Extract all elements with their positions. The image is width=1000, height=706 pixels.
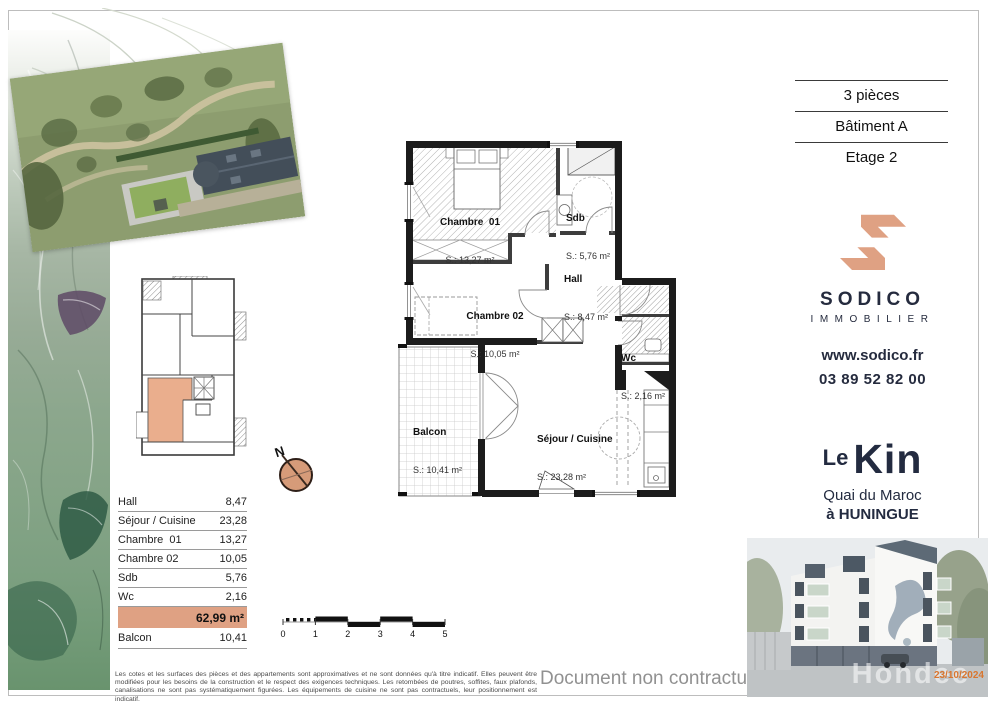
- compass-north-icon: N: [272, 442, 320, 496]
- room-label-wc: Wc S.: 2,16 m²: [621, 329, 665, 414]
- aerial-photo-art: [10, 43, 305, 252]
- scale-tick: 0: [280, 629, 285, 639]
- residence-address1: Quai du Maroc: [790, 487, 955, 504]
- table-row: Chambre 0210,05: [118, 550, 247, 569]
- room-label-sejour: Séjour / Cuisine S.: 23,28 m²: [537, 410, 613, 495]
- scale-tick: 2: [345, 629, 350, 639]
- building-render-photo: Hondee 23/10/2024: [747, 538, 988, 697]
- sodico-logo-icon: [835, 210, 911, 276]
- scale-bar: 0 1 2 3 4 5: [278, 606, 450, 640]
- agency-website: www.sodico.fr: [795, 347, 950, 364]
- table-row: Hall8,47: [118, 493, 247, 512]
- scale-tick: 1: [313, 629, 318, 639]
- balcony-row: Balcon10,41: [118, 628, 247, 649]
- room-label-chambre02: Chambre 02 S.: 10,05 m²: [440, 287, 550, 372]
- room-label-balcon: Balcon S.: 10,41 m²: [413, 403, 462, 488]
- scale-tick: 3: [378, 629, 383, 639]
- scale-tick: 5: [442, 629, 447, 639]
- unit-building: Bâtiment A: [795, 112, 948, 142]
- compass-label: N: [273, 443, 287, 460]
- agency-tagline: IMMOBILIER: [795, 314, 950, 325]
- residence-name: Kin: [853, 436, 922, 482]
- table-row: Wc2,16: [118, 588, 247, 607]
- non-contractual-notice: Document non contractuel: [540, 668, 762, 690]
- residence-block: LeKin Quai du Maroc à HUNINGUE: [790, 436, 955, 523]
- table-row: Chambre 0113,27: [118, 531, 247, 550]
- agency-name: SODICO: [795, 289, 950, 311]
- residence-address2: à HUNINGUE: [790, 506, 955, 523]
- residence-prefix: Le: [823, 445, 849, 470]
- agency-block: SODICO IMMOBILIER www.sodico.fr 03 89 52…: [795, 210, 950, 388]
- unit-floor: Etage 2: [795, 143, 948, 173]
- date-stamp: 23/10/2024: [934, 670, 984, 681]
- key-plan: [136, 276, 248, 460]
- areas-table: Hall8,47 Séjour / Cuisine23,28 Chambre 0…: [118, 493, 247, 649]
- unit-type: 3 pièces: [795, 81, 948, 111]
- room-label-hall: Hall S.: 8,47 m²: [564, 250, 608, 335]
- table-row: Sdb5,76: [118, 569, 247, 588]
- total-area-row: 62,99 m²: [118, 607, 247, 628]
- room-label-chambre01: Chambre 01 S.: 13,27 m²: [420, 193, 520, 278]
- table-row: Séjour / Cuisine23,28: [118, 512, 247, 531]
- scale-tick: 4: [410, 629, 415, 639]
- agency-phone: 03 89 52 82 00: [795, 371, 950, 388]
- unit-header: 3 pièces Bâtiment A Etage 2: [795, 80, 948, 173]
- aerial-site-photo: [10, 43, 305, 252]
- legal-disclaimer: Les cotes et les surfaces des pièces et …: [115, 671, 537, 704]
